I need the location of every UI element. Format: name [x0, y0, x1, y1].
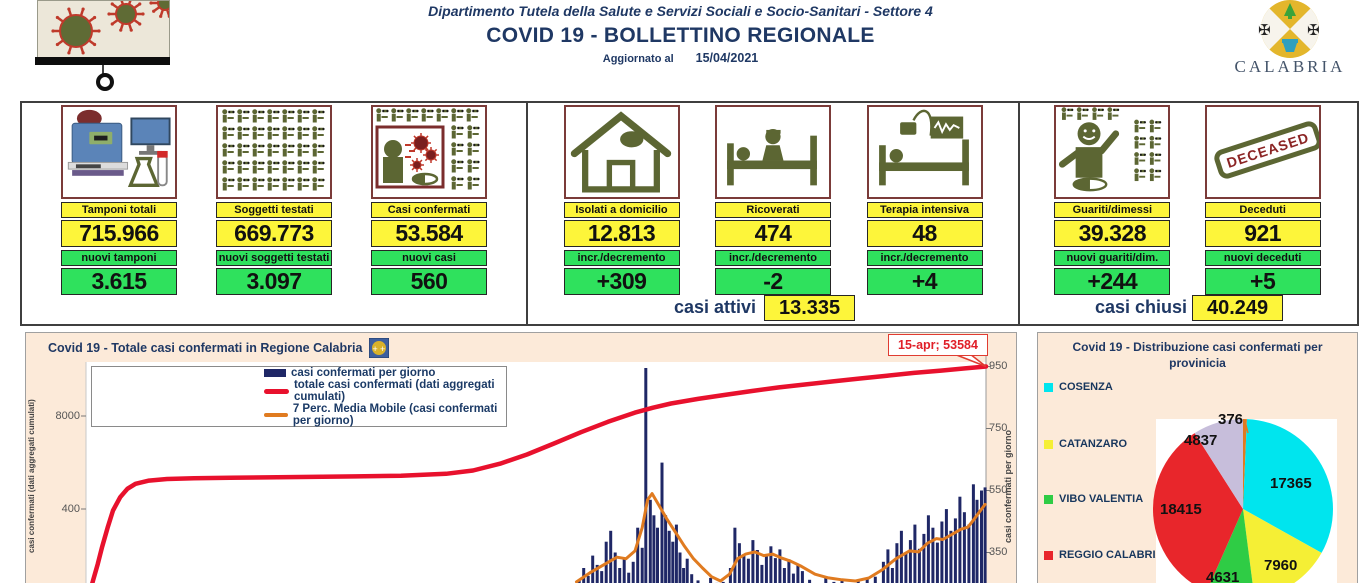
calabria-mini-icon: + +: [369, 338, 389, 358]
card-terapia-intensiva: Terapia intensiva 48 incr./decremento +4: [867, 105, 983, 295]
legend-label: 7 Perc. Media Mobile (casi confermati pe…: [293, 403, 506, 427]
stat-value: 474: [715, 220, 831, 247]
pie-label-reggio: 18415: [1160, 501, 1202, 518]
legend-item-reggio-calabria: REGGIO CALABRIA: [1044, 549, 1164, 561]
card-tamponi-totali: Tamponi totali 715.966 nuovi tamponi 3.6…: [61, 105, 177, 295]
home-isolation-icon: [564, 105, 680, 199]
province-distribution-card: Covid 19 - Distribuzione casi confermati…: [1037, 332, 1358, 583]
stat-value: 715.966: [61, 220, 177, 247]
svg-text:✠: ✠: [1307, 21, 1320, 39]
casi-attivi-value: 13.335: [764, 295, 855, 321]
stat-value: 48: [867, 220, 983, 247]
legend-label: VIBO VALENTIA: [1059, 493, 1143, 505]
stat-label: Isolati a domicilio: [564, 202, 680, 218]
reggio-calabria-swatch-icon: [1044, 551, 1053, 560]
stat-sub-value: 3.615: [61, 268, 177, 295]
trend-chart-legend: casi confermati per giorno totale casi c…: [91, 366, 507, 427]
casi-attivi-row: casi attivi 13.335: [528, 295, 1018, 321]
department-line: Dipartimento Tutela della Salute e Servi…: [0, 3, 1361, 19]
legend-item-cosenza: COSENZA: [1044, 381, 1113, 393]
stat-label: Casi confermati: [371, 202, 487, 218]
pie-label-vibo: 4631: [1206, 569, 1239, 583]
updated-row: Aggiornato al 15/04/2021: [0, 51, 1361, 65]
legend-item-total-cases: totale casi confermati (dati aggregati c…: [92, 379, 506, 403]
stats-group-active: Isolati a domicilio 12.813 incr./decreme…: [526, 103, 1018, 324]
left-axis-tick: 8000: [40, 410, 80, 422]
card-casi-confermati: Casi confermati 53.584 nuovi casi 560: [371, 105, 487, 295]
stat-sub-label: incr./decremento: [715, 250, 831, 266]
svg-text:✠: ✠: [1258, 21, 1271, 39]
stat-sub-value: 3.097: [216, 268, 332, 295]
trend-chart-title: Covid 19 - Totale casi confermati in Reg…: [48, 341, 362, 355]
projector-pull-ring: [96, 73, 114, 91]
hospital-bed-icon: [715, 105, 831, 199]
pie-label-cosenza: 17365: [1270, 475, 1312, 492]
casi-chiusi-value: 40.249: [1192, 295, 1283, 321]
calabria-region-logo: ✠ ✠ CALABRIA: [1222, 0, 1358, 86]
pie-label-catanzaro: 7960: [1264, 557, 1297, 574]
stat-sub-value: +4: [867, 268, 983, 295]
stat-sub-value: +309: [564, 268, 680, 295]
right-axis-title: casi confermati per giorno: [1003, 388, 1013, 583]
card-isolati: Isolati a domicilio 12.813 incr./decreme…: [564, 105, 680, 295]
deceased-stamp-icon: DECEASED: [1205, 105, 1321, 199]
bar-swatch-icon: [264, 369, 286, 377]
legend-item-vibo-valentia: VIBO VALENTIA: [1044, 493, 1143, 505]
left-axis-title: casi confermati (dati aggregati cumulati…: [27, 369, 36, 583]
stat-value: 921: [1205, 220, 1321, 247]
stat-sub-value: +5: [1205, 268, 1321, 295]
card-ricoverati: Ricoverati 474 incr./decremento -2: [715, 105, 831, 295]
stat-label: Deceduti: [1205, 202, 1321, 218]
stat-label: Guariti/dimessi: [1054, 202, 1170, 218]
stats-section: Tamponi totali 715.966 nuovi tamponi 3.6…: [20, 101, 1359, 326]
calabria-emblem-icon: ✠ ✠: [1222, 0, 1358, 60]
pie-chart-title: Covid 19 - Distribuzione casi confermati…: [1038, 340, 1357, 371]
stat-sub-label: nuovi soggetti testati: [216, 250, 332, 266]
stat-sub-label: nuovi deceduti: [1205, 250, 1321, 266]
vibo-valentia-swatch-icon: [1044, 495, 1053, 504]
cases-trend-chart-card: Covid 19 - Totale casi confermati in Reg…: [25, 332, 1017, 583]
calabria-logo-text: CALABRIA: [1222, 57, 1358, 77]
confirmed-cases-icon: [371, 105, 487, 199]
svg-text:+: +: [380, 344, 385, 354]
catanzaro-swatch-icon: [1044, 440, 1053, 449]
stat-value: 53.584: [371, 220, 487, 247]
legend-item-catanzaro: CATANZARO: [1044, 438, 1127, 450]
stat-label: Tamponi totali: [61, 202, 177, 218]
stat-label: Ricoverati: [715, 202, 831, 218]
casi-chiusi-label: casi chiusi: [1095, 297, 1187, 318]
legend-label: totale casi confermati (dati aggregati c…: [294, 379, 506, 403]
right-axis-tick: 950: [989, 360, 1017, 372]
lab-analyzer-icon: [61, 105, 177, 199]
legend-label: CATANZARO: [1059, 438, 1127, 450]
casi-attivi-label: casi attivi: [674, 297, 756, 318]
stat-label: Terapia intensiva: [867, 202, 983, 218]
icu-bed-icon: [867, 105, 983, 199]
orange-line-swatch-icon: [264, 413, 288, 417]
legend-label: casi confermati per giorno: [291, 367, 435, 379]
covid-bulletin-dashboard: Dipartimento Tutela della Salute e Servi…: [0, 0, 1361, 583]
casi-chiusi-row: casi chiusi 40.249: [1020, 295, 1355, 321]
legend-label: REGGIO CALABRIA: [1059, 549, 1164, 561]
stat-value: 39.328: [1054, 220, 1170, 247]
deceased-stamp-text: DECEASED: [1212, 119, 1321, 181]
stat-sub-label: nuovi casi: [371, 250, 487, 266]
card-guariti: Guariti/dimessi 39.328 nuovi guariti/dim…: [1054, 105, 1170, 295]
red-line-swatch-icon: [264, 389, 289, 394]
pie-title-line2: provinicia: [1038, 356, 1357, 372]
tested-subjects-icon: [216, 105, 332, 199]
stats-group-testing: Tamponi totali 715.966 nuovi tamponi 3.6…: [22, 103, 526, 324]
legend-item-moving-average: 7 Perc. Media Mobile (casi confermati pe…: [92, 403, 506, 427]
page-title: COVID 19 - BOLLETTINO REGIONALE: [0, 24, 1361, 48]
stat-value: 12.813: [564, 220, 680, 247]
stat-sub-label: incr./decremento: [564, 250, 680, 266]
stat-sub-value: -2: [715, 268, 831, 295]
stat-sub-label: incr./decremento: [867, 250, 983, 266]
stat-sub-label: nuovi tamponi: [61, 250, 177, 266]
card-deceduti: DECEASED Deceduti 921 nuovi deceduti +5: [1205, 105, 1321, 295]
svg-text:+: +: [373, 344, 378, 354]
stat-sub-value: 560: [371, 268, 487, 295]
stat-value: 669.773: [216, 220, 332, 247]
card-soggetti-testati: Soggetti testati 669.773 nuovi soggetti …: [216, 105, 332, 295]
legend-label: COSENZA: [1059, 381, 1113, 393]
updated-label: Aggiornato al: [603, 53, 674, 65]
recovered-icon: [1054, 105, 1170, 199]
pie-label-376: 376: [1218, 411, 1243, 428]
updated-date: 15/04/2021: [696, 51, 759, 65]
pie-title-line1: Covid 19 - Distribuzione casi confermati…: [1038, 340, 1357, 356]
left-axis-tick: 400: [40, 503, 80, 515]
pie-label-4837: 4837: [1184, 432, 1217, 449]
stats-group-closed: Guariti/dimessi 39.328 nuovi guariti/dim…: [1018, 103, 1355, 324]
latest-value-callout: 15-apr; 53584: [888, 334, 988, 356]
stat-label: Soggetti testati: [216, 202, 332, 218]
cosenza-swatch-icon: [1044, 383, 1053, 392]
stat-sub-label: nuovi guariti/dim.: [1054, 250, 1170, 266]
legend-item-daily-cases: casi confermati per giorno: [92, 367, 506, 379]
stat-sub-value: +244: [1054, 268, 1170, 295]
